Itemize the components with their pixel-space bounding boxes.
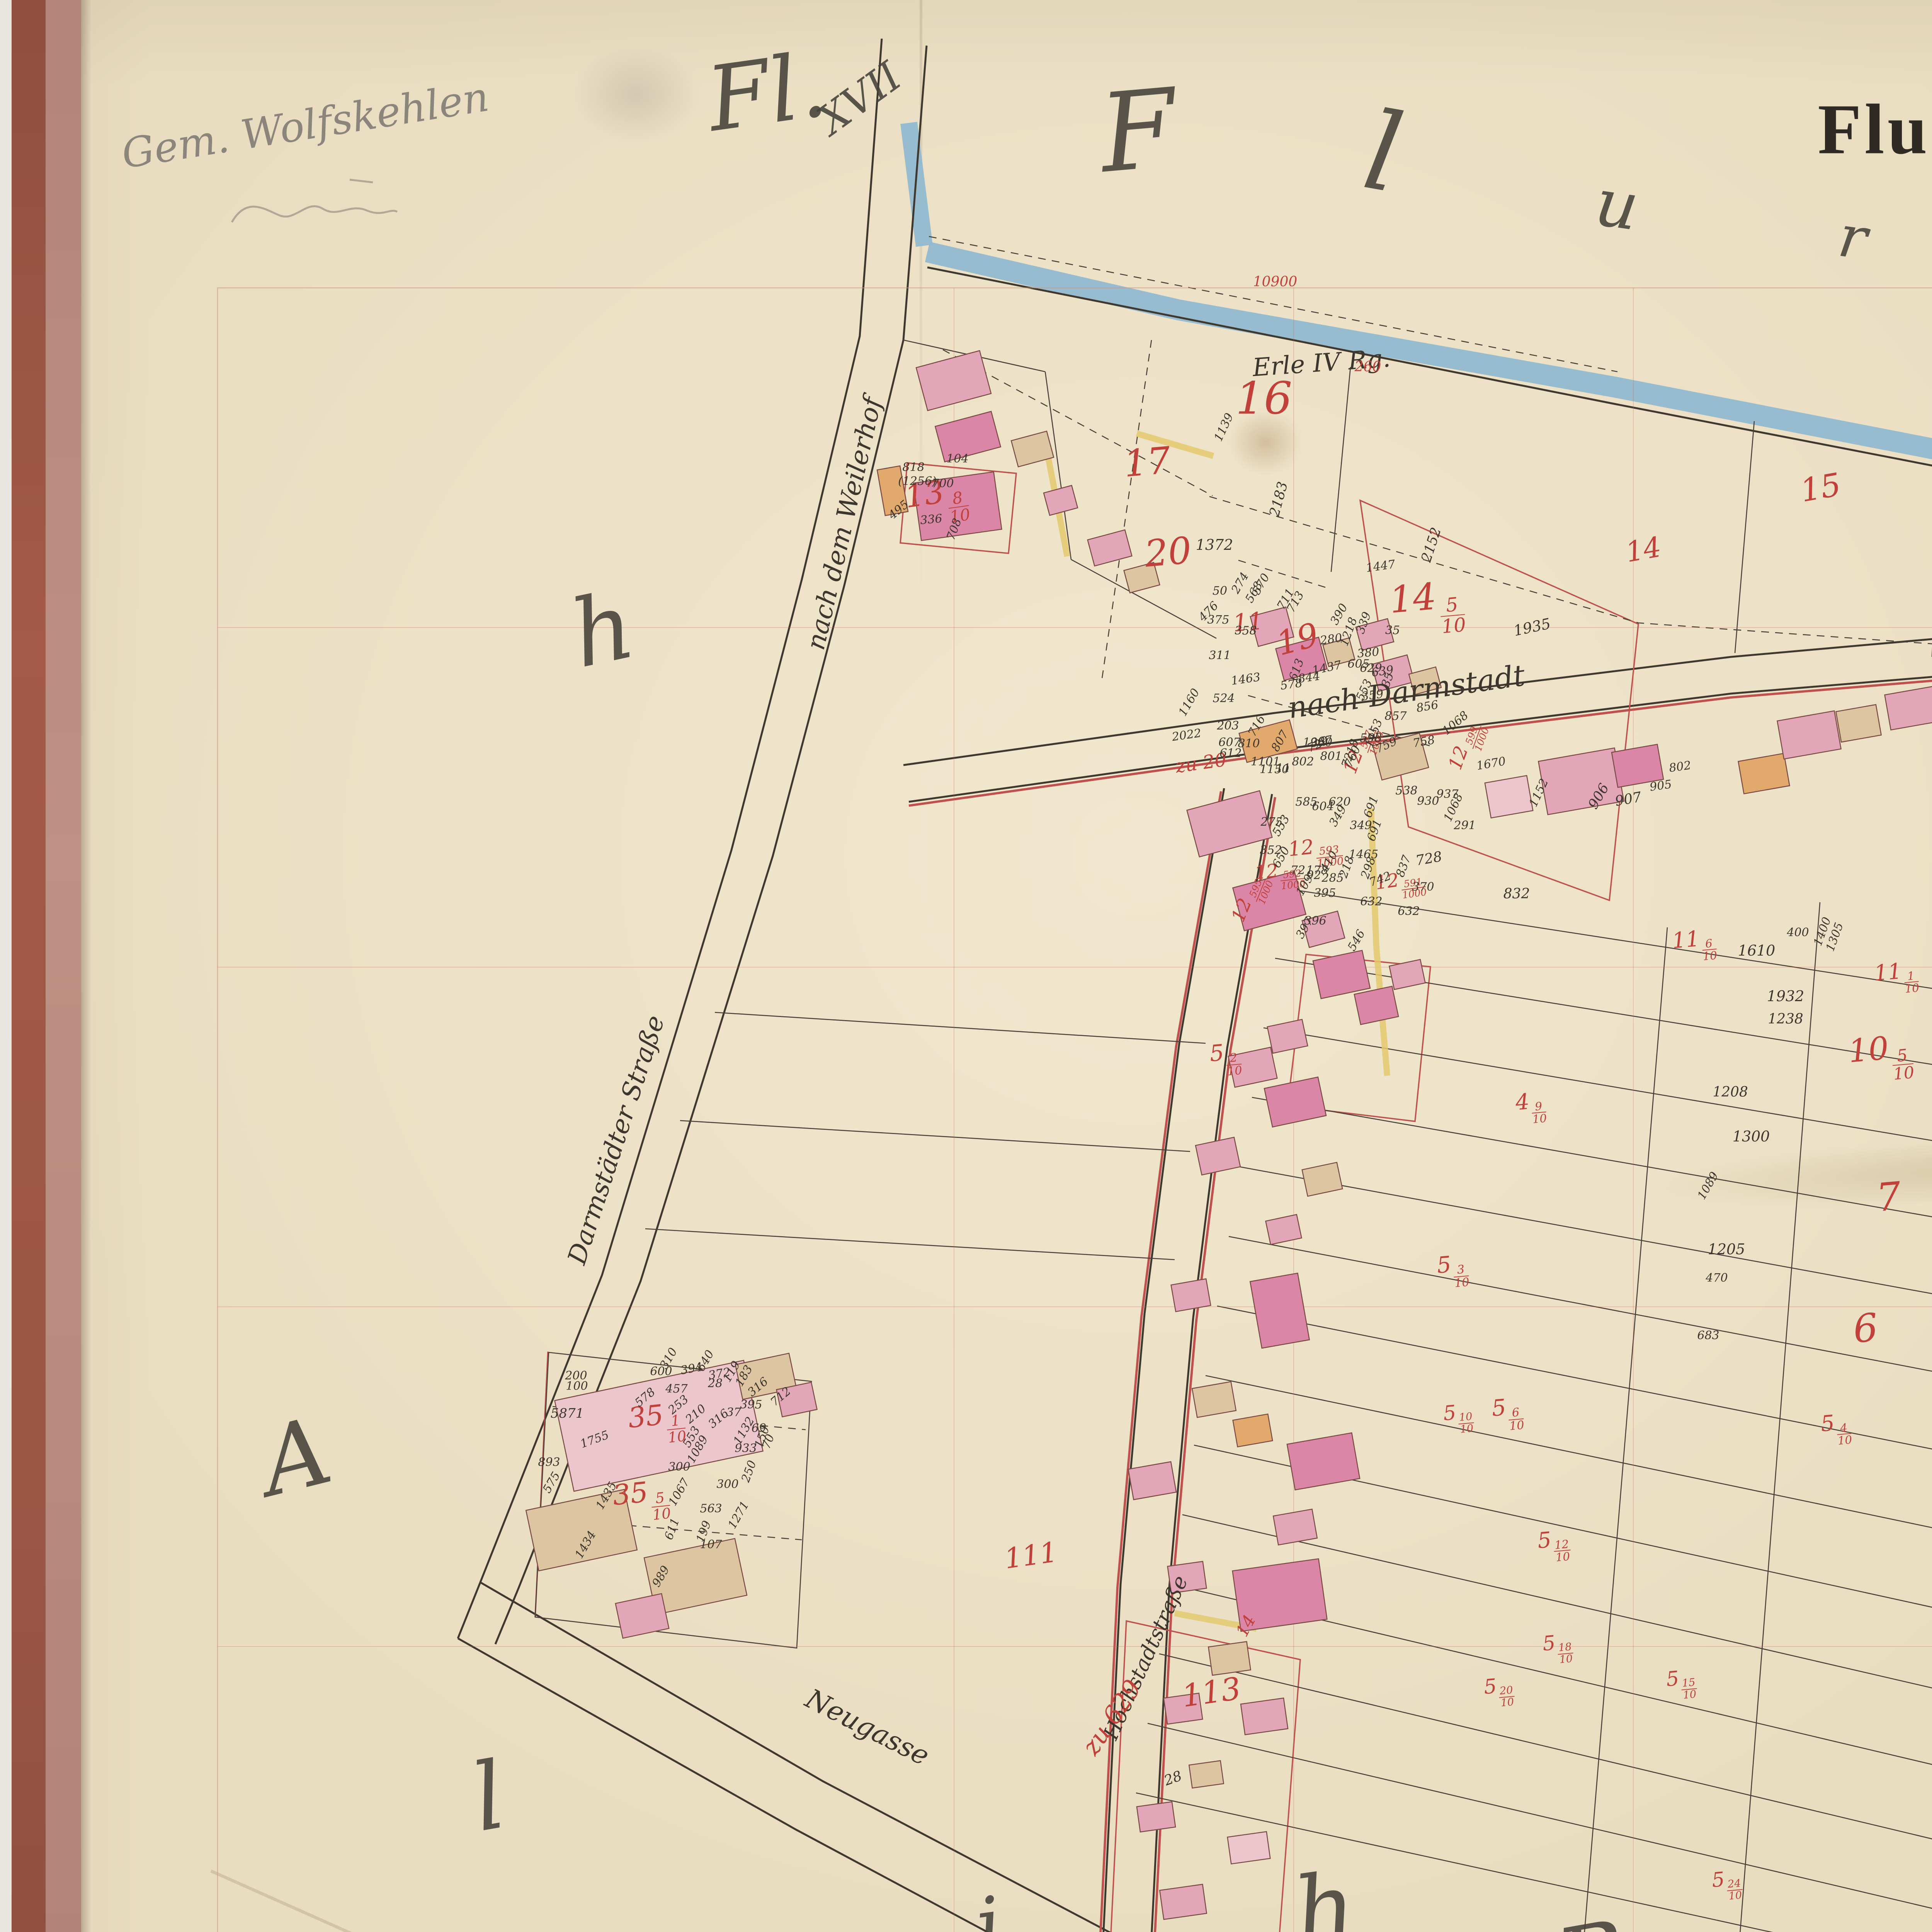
building-footprint xyxy=(1354,986,1398,1024)
district-label: 35510 xyxy=(611,1476,672,1527)
map-path-thin xyxy=(1264,1028,1932,1198)
district-label: 17 xyxy=(1122,442,1172,483)
grid-label: 260 xyxy=(1355,360,1381,374)
district-label: 6 xyxy=(1852,1308,1879,1349)
parcel-label: 203 xyxy=(1217,720,1239,732)
map-path-dash xyxy=(1101,340,1151,684)
building-footprint xyxy=(916,350,991,410)
building-footprint xyxy=(1538,748,1624,815)
parcel-label: 375 xyxy=(1207,614,1229,626)
parcel-label: 1300 xyxy=(1733,1129,1770,1144)
parcel-label: 470 xyxy=(1706,1272,1728,1284)
district-label: 5310 xyxy=(1436,1252,1470,1291)
building-footprint xyxy=(1273,1509,1317,1545)
building-footprint xyxy=(1250,1273,1309,1348)
parcel-label: 107 xyxy=(700,1539,722,1551)
parcel-label: 802 xyxy=(1292,756,1314,768)
district-label: 14 xyxy=(1624,533,1663,566)
district-label: 113 xyxy=(1180,1673,1243,1712)
parcel-label: 893 xyxy=(538,1457,560,1468)
district-label: 19 xyxy=(1273,618,1322,661)
building-footprint xyxy=(1044,485,1078,515)
map-path-stream xyxy=(927,252,1932,511)
map-path-red xyxy=(1097,791,1221,1932)
map-path-thin xyxy=(715,1012,1206,1043)
parcel-label: 370 xyxy=(1412,881,1434,893)
parcel-label: 35 xyxy=(1385,625,1400,636)
parcel-label: 700 xyxy=(932,478,954,490)
building-footprint xyxy=(1128,1462,1176,1500)
building-footprint xyxy=(1264,1077,1326,1127)
building-footprint xyxy=(1267,1019,1308,1053)
parcel-label: 275 xyxy=(1260,816,1282,828)
district-label: 5610 xyxy=(1491,1395,1525,1434)
building-footprint xyxy=(1160,1884,1206,1920)
parcel-label: 905 xyxy=(1649,779,1673,793)
parcel-label: 28 xyxy=(708,1378,723,1389)
parcel-label: 1372 xyxy=(1196,537,1233,552)
district-label: 5210 xyxy=(1209,1040,1243,1079)
parcel-label: 683 xyxy=(1697,1330,1719,1342)
district-label: 51810 xyxy=(1542,1631,1574,1667)
map-path-thin xyxy=(1159,1654,1932,1874)
parcel-label: 291 xyxy=(1454,820,1476,832)
district-label: 52010 xyxy=(1483,1675,1515,1710)
building-footprint xyxy=(1738,753,1790,794)
district-label: 10510 xyxy=(1847,1031,1915,1087)
district-label: 4910 xyxy=(1515,1090,1548,1127)
parcel-label: 336 xyxy=(920,513,943,527)
district-label: 7 xyxy=(1875,1177,1903,1217)
building-footprint xyxy=(1192,1382,1236,1418)
map-path-penc xyxy=(350,180,373,182)
district-label: 15 xyxy=(1798,469,1844,507)
building-footprint xyxy=(1187,791,1272,857)
map-path-thin xyxy=(1331,367,1350,572)
building-footprint xyxy=(1265,1214,1301,1245)
parcel-label: 857 xyxy=(1384,711,1406,722)
parcel-label: 311 xyxy=(1209,650,1231,662)
parcel-label: 600 xyxy=(650,1366,672,1378)
map-path-thin xyxy=(1148,1723,1932,1932)
parcel-label: 104 xyxy=(946,453,968,465)
building-footprint xyxy=(1088,530,1132,566)
building-footprint xyxy=(1228,1832,1270,1864)
district-label: 52410 xyxy=(1711,1868,1743,1903)
building-footprint xyxy=(1389,959,1425,990)
district-label: 16 xyxy=(1236,377,1292,421)
building-footprint xyxy=(1313,951,1370,999)
district-label: 51210 xyxy=(1537,1528,1571,1565)
map-drawing xyxy=(0,0,1932,1932)
map-path-dash xyxy=(1209,497,1932,657)
parcel-label: 300 xyxy=(716,1479,738,1490)
map-path-thin xyxy=(1136,1793,1932,1932)
parcel-label: 801 xyxy=(1320,751,1342,762)
parcel-label: 100 xyxy=(566,1381,588,1392)
building-footprint xyxy=(1485,776,1533,818)
parcel-label: 359 xyxy=(1361,688,1384,703)
parcel-label: 50 xyxy=(1213,585,1227,597)
building-footprint xyxy=(1302,1162,1343,1196)
title-flur: Flur xyxy=(1818,88,1932,171)
parcel-label: 930 xyxy=(1417,796,1439,807)
map-path-thin xyxy=(1252,1097,1932,1275)
parcel-label: 400 xyxy=(1787,927,1809,939)
parcel-label: 1150 xyxy=(1260,764,1289,776)
district-label: 5410 xyxy=(1820,1411,1853,1448)
parcel-label: 818 xyxy=(902,462,924,473)
district-label: 11110 xyxy=(1873,959,1920,997)
building-footprint xyxy=(1836,704,1881,742)
parcel-label: 37 xyxy=(726,1407,741,1418)
parcel-label: 1238 xyxy=(1768,1012,1803,1026)
parcel-label: 395 xyxy=(740,1399,762,1411)
district-label: 11610 xyxy=(1671,927,1718,965)
building-footprint xyxy=(1233,1414,1273,1447)
parcel-label: 5871 xyxy=(551,1407,584,1420)
building-footprint xyxy=(1241,1698,1288,1735)
parcel-label: 832 xyxy=(1503,887,1530,901)
map-path-thin xyxy=(1240,1167,1932,1352)
parcel-label: 300 xyxy=(668,1461,690,1473)
map-path-thin xyxy=(645,1229,1175,1260)
parcel-label: 524 xyxy=(1213,693,1235,704)
district-label: 51010 xyxy=(1442,1401,1475,1437)
map-path-thin xyxy=(680,1121,1190,1151)
building-footprint xyxy=(1196,1137,1240,1175)
parcel-label: 937 xyxy=(1436,789,1458,800)
parcel-label: 358 xyxy=(1235,625,1257,637)
map-path-ink xyxy=(1148,794,1272,1932)
building-footprint xyxy=(1777,711,1841,759)
building-footprint xyxy=(1189,1761,1224,1788)
parcel-label: 395 xyxy=(1314,888,1336,899)
letter-label: u xyxy=(1592,169,1643,240)
letter-label: F xyxy=(1096,74,1180,189)
map-path-ink xyxy=(927,267,1932,501)
parcel-label: 563 xyxy=(700,1503,722,1515)
letter-label: Fl. xyxy=(702,41,832,145)
building-footprint xyxy=(1885,686,1932,730)
map-path-thin xyxy=(1735,421,1754,653)
parcel-label: 1932 xyxy=(1767,989,1804,1003)
building-footprint xyxy=(1208,1641,1250,1675)
parcel-label: 1610 xyxy=(1738,943,1776,958)
parcel-label: 1208 xyxy=(1713,1085,1748,1099)
parcel-label: (1256) xyxy=(898,476,937,487)
building-footprint xyxy=(1137,1802,1175,1832)
map-path-thin xyxy=(1275,958,1932,1121)
building-footprint xyxy=(1171,1279,1211,1312)
district-label: 20 xyxy=(1143,532,1193,573)
district-label: 51510 xyxy=(1665,1667,1698,1702)
parcel-label: 632 xyxy=(1398,906,1420,917)
district-label: 111 xyxy=(1003,1538,1059,1573)
parcel-label: 1205 xyxy=(1708,1242,1745,1257)
map-path-thin xyxy=(1739,902,1820,1932)
map-path-thin xyxy=(1580,927,1667,1932)
building-footprint xyxy=(1287,1433,1360,1490)
map-path-dash xyxy=(929,236,1617,372)
parcel-label: 810 xyxy=(1238,738,1260,750)
map-path-penc xyxy=(232,206,397,222)
parcel-label: 457 xyxy=(665,1383,687,1395)
parcel-label: 802 xyxy=(1668,760,1692,774)
grid-label: 10900 xyxy=(1253,275,1298,289)
parcel-label: 538 xyxy=(1395,785,1417,797)
map-path-thin xyxy=(1229,1236,1932,1430)
cadastral-map-scan: Nr. 2 Flur I Abth. A Maßstab 1: 500 HESS… xyxy=(0,0,1932,1932)
parcel-label: 632 xyxy=(1360,896,1382,908)
